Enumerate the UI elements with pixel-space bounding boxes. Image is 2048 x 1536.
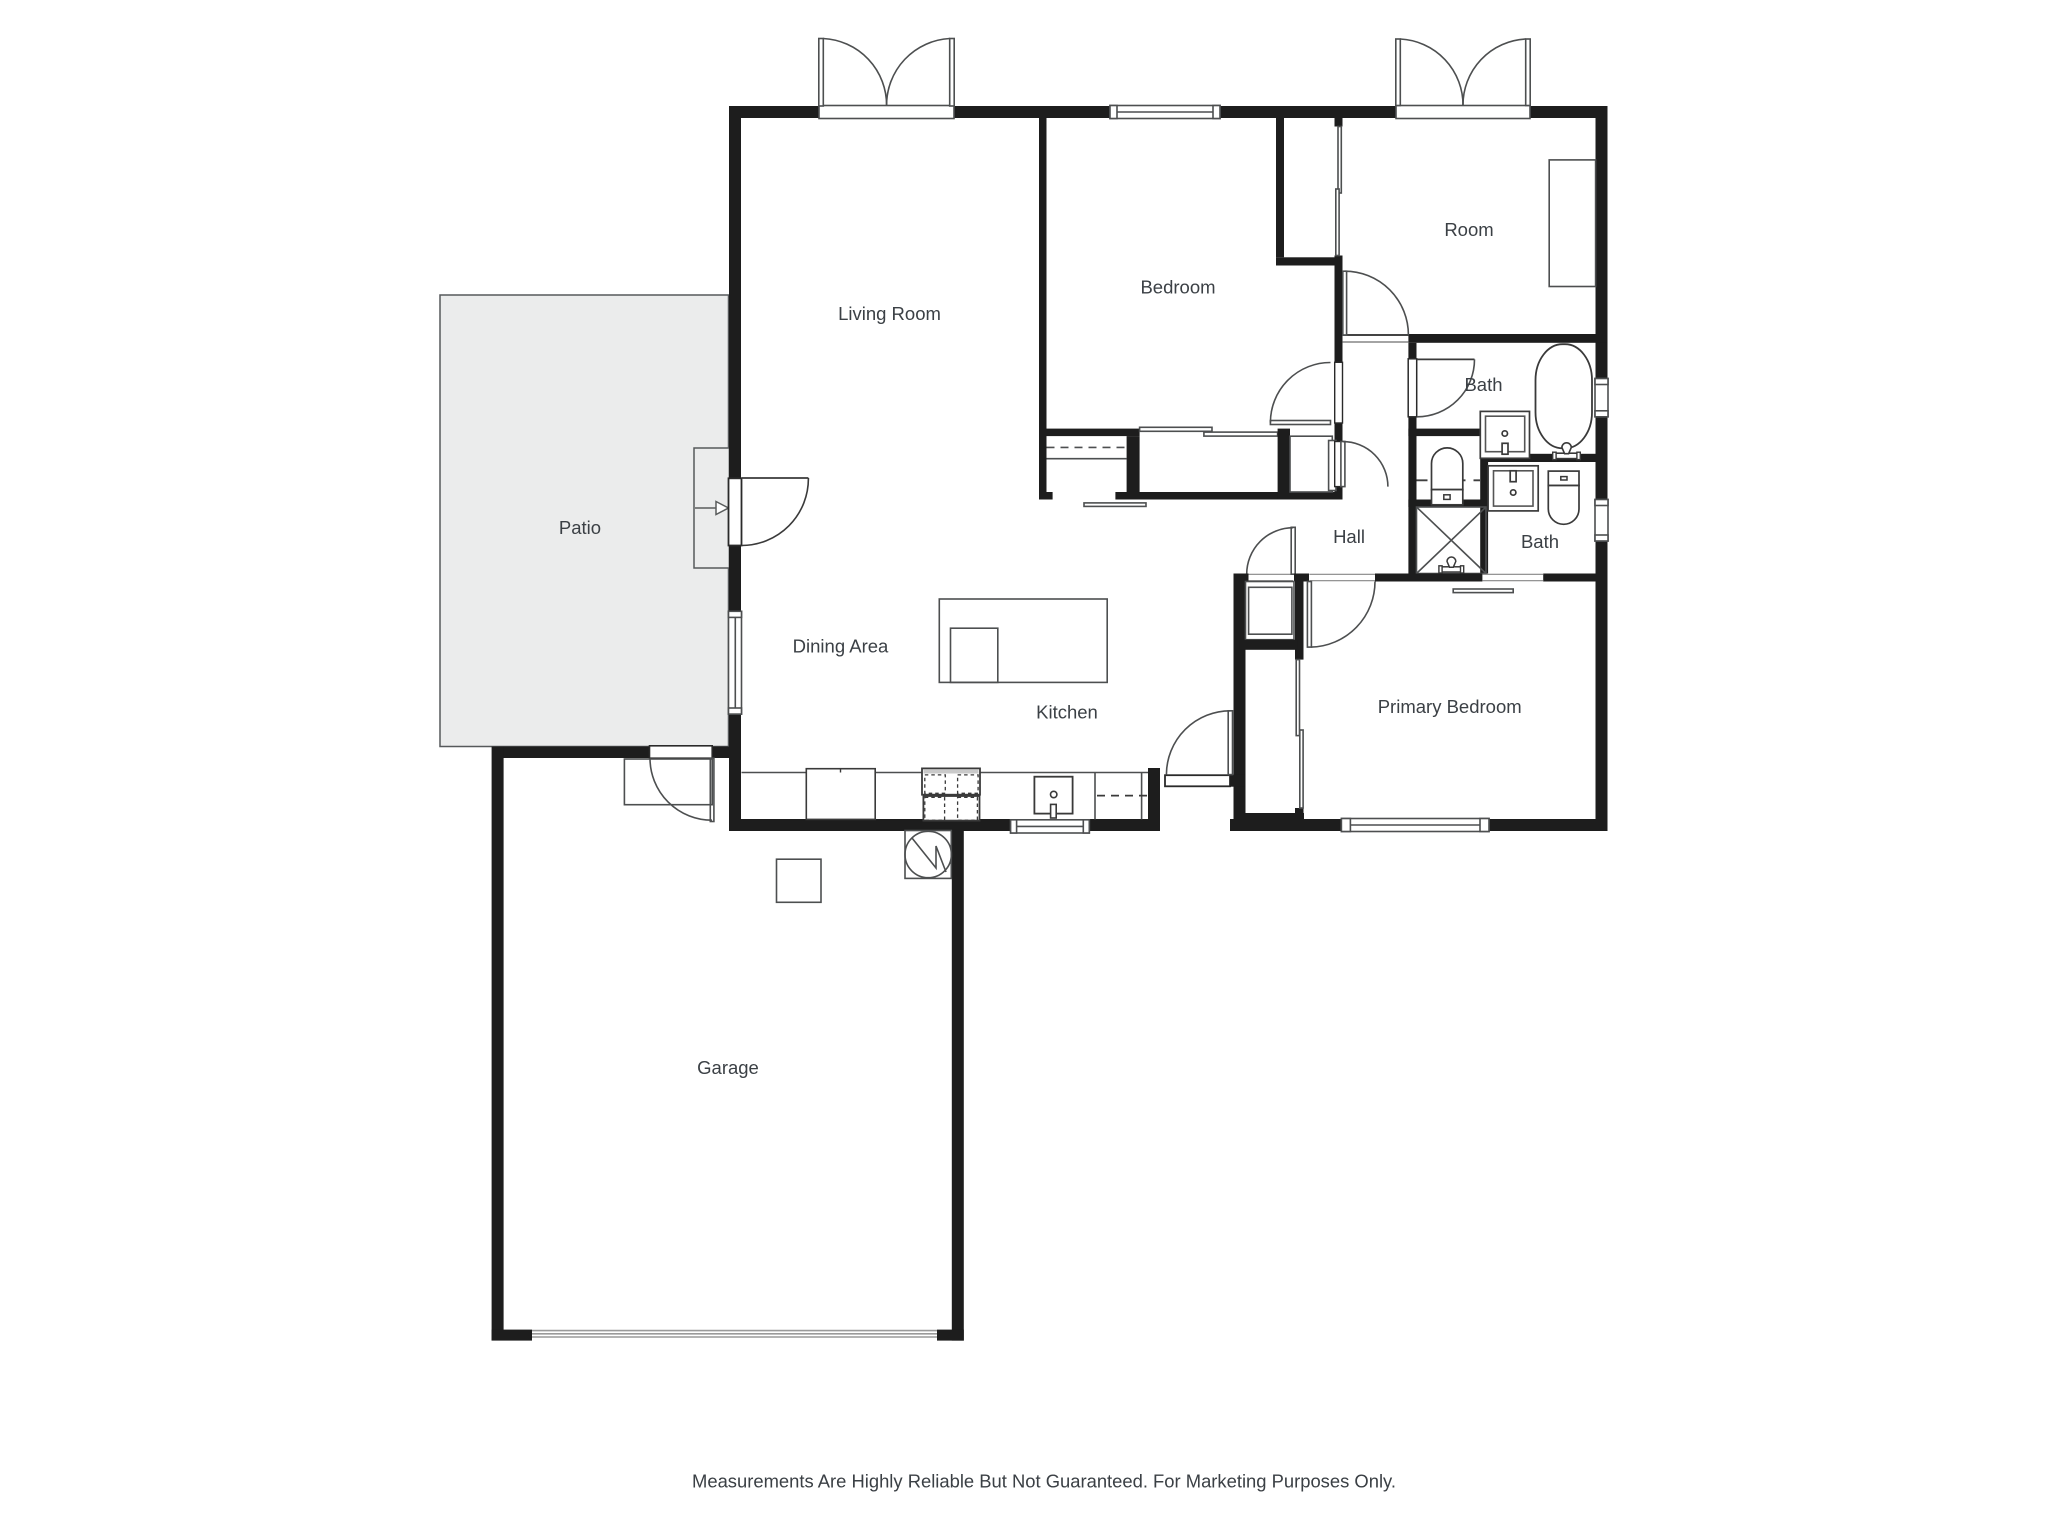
- svg-text:Bath: Bath: [1521, 531, 1559, 552]
- svg-text:Garage: Garage: [697, 1057, 759, 1078]
- svg-text:Kitchen: Kitchen: [1036, 702, 1098, 723]
- svg-text:Primary Bedroom: Primary Bedroom: [1378, 696, 1522, 717]
- svg-text:Living Room: Living Room: [838, 303, 941, 324]
- svg-text:Hall: Hall: [1333, 526, 1365, 547]
- svg-text:Measurements Are Highly Reliab: Measurements Are Highly Reliable But Not…: [692, 1471, 1396, 1492]
- svg-text:Bedroom: Bedroom: [1140, 277, 1215, 298]
- svg-text:Bath: Bath: [1464, 374, 1502, 395]
- svg-text:Room: Room: [1444, 219, 1493, 240]
- svg-text:Dining Area: Dining Area: [793, 636, 889, 657]
- svg-text:Patio: Patio: [559, 517, 601, 538]
